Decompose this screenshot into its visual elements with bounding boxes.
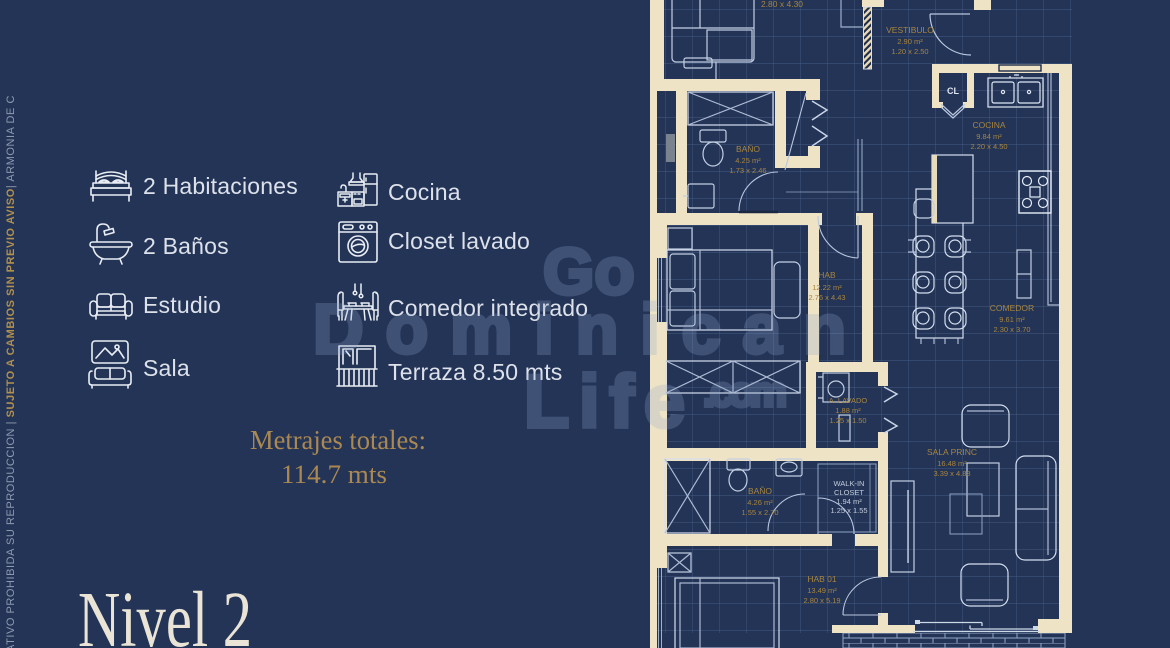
svg-text:WALK-IN: WALK-IN [834,479,865,488]
svg-text:COMEDOR: COMEDOR [990,303,1034,313]
svg-text:1.88 m²: 1.88 m² [835,406,861,415]
svg-text:1.94 m²: 1.94 m² [836,497,862,506]
svg-text:4.25 m²: 4.25 m² [735,156,761,165]
svg-text:CLOSET: CLOSET [834,488,864,497]
svg-text:1.20 x 2.50: 1.20 x 2.50 [891,47,928,56]
svg-text:1.25 x 1.55: 1.25 x 1.55 [830,506,867,515]
svg-text:2.90 m²: 2.90 m² [897,37,923,46]
svg-text:ATIVO PROHIBIDA SU REPRODUCCIO: ATIVO PROHIBIDA SU REPRODUCCION | SUJETO… [5,95,17,648]
svg-text:COCINA: COCINA [972,120,1005,130]
svg-text:HAB: HAB [818,270,836,280]
svg-text:CL: CL [947,86,959,96]
svg-text:A. LAVADO: A. LAVADO [829,396,868,405]
svg-text:.com: .com [703,368,787,415]
svg-text:2.80 x 5.19: 2.80 x 5.19 [803,596,840,605]
svg-text:HAB 01: HAB 01 [807,574,837,584]
svg-text:3.39 x 4.88: 3.39 x 4.88 [933,469,970,478]
svg-text:114.7 mts: 114.7 mts [281,460,387,489]
svg-text:Sala: Sala [143,355,190,381]
svg-text:Closet lavado: Closet lavado [388,228,530,254]
svg-text:9.84 m²: 9.84 m² [976,132,1002,141]
svg-text:2.20 x 4.50: 2.20 x 4.50 [970,142,1007,151]
svg-text:Cocina: Cocina [388,179,461,205]
svg-text:9.61 m²: 9.61 m² [999,315,1025,324]
svg-text:Estudio: Estudio [143,292,221,318]
svg-text:16.48 m²: 16.48 m² [937,459,967,468]
svg-text:Nivel 2: Nivel 2 [78,577,252,648]
svg-text:2.80 x 4.30: 2.80 x 4.30 [761,0,803,9]
svg-text:13.49 m²: 13.49 m² [807,586,837,595]
svg-text:1.73 x 2.46: 1.73 x 2.46 [729,166,766,175]
svg-text:BAÑO: BAÑO [748,486,772,496]
svg-text:2.30 x 3.70: 2.30 x 3.70 [993,325,1030,334]
svg-text:VESTIBULO: VESTIBULO [886,25,934,35]
svg-text:2 Baños: 2 Baños [143,233,229,259]
svg-text:Dominican: Dominican [313,290,846,368]
svg-text:BAÑO: BAÑO [736,144,760,154]
svg-text:2 Habitaciones: 2 Habitaciones [143,173,298,199]
svg-text:1.25 x 1.50: 1.25 x 1.50 [829,416,866,425]
svg-text:4.26 m²: 4.26 m² [747,498,773,507]
svg-text:Metrajes totales:: Metrajes totales: [250,425,426,455]
svg-text:SALA PRINC: SALA PRINC [927,447,977,457]
svg-text:1.55 x 2.70: 1.55 x 2.70 [741,508,778,517]
